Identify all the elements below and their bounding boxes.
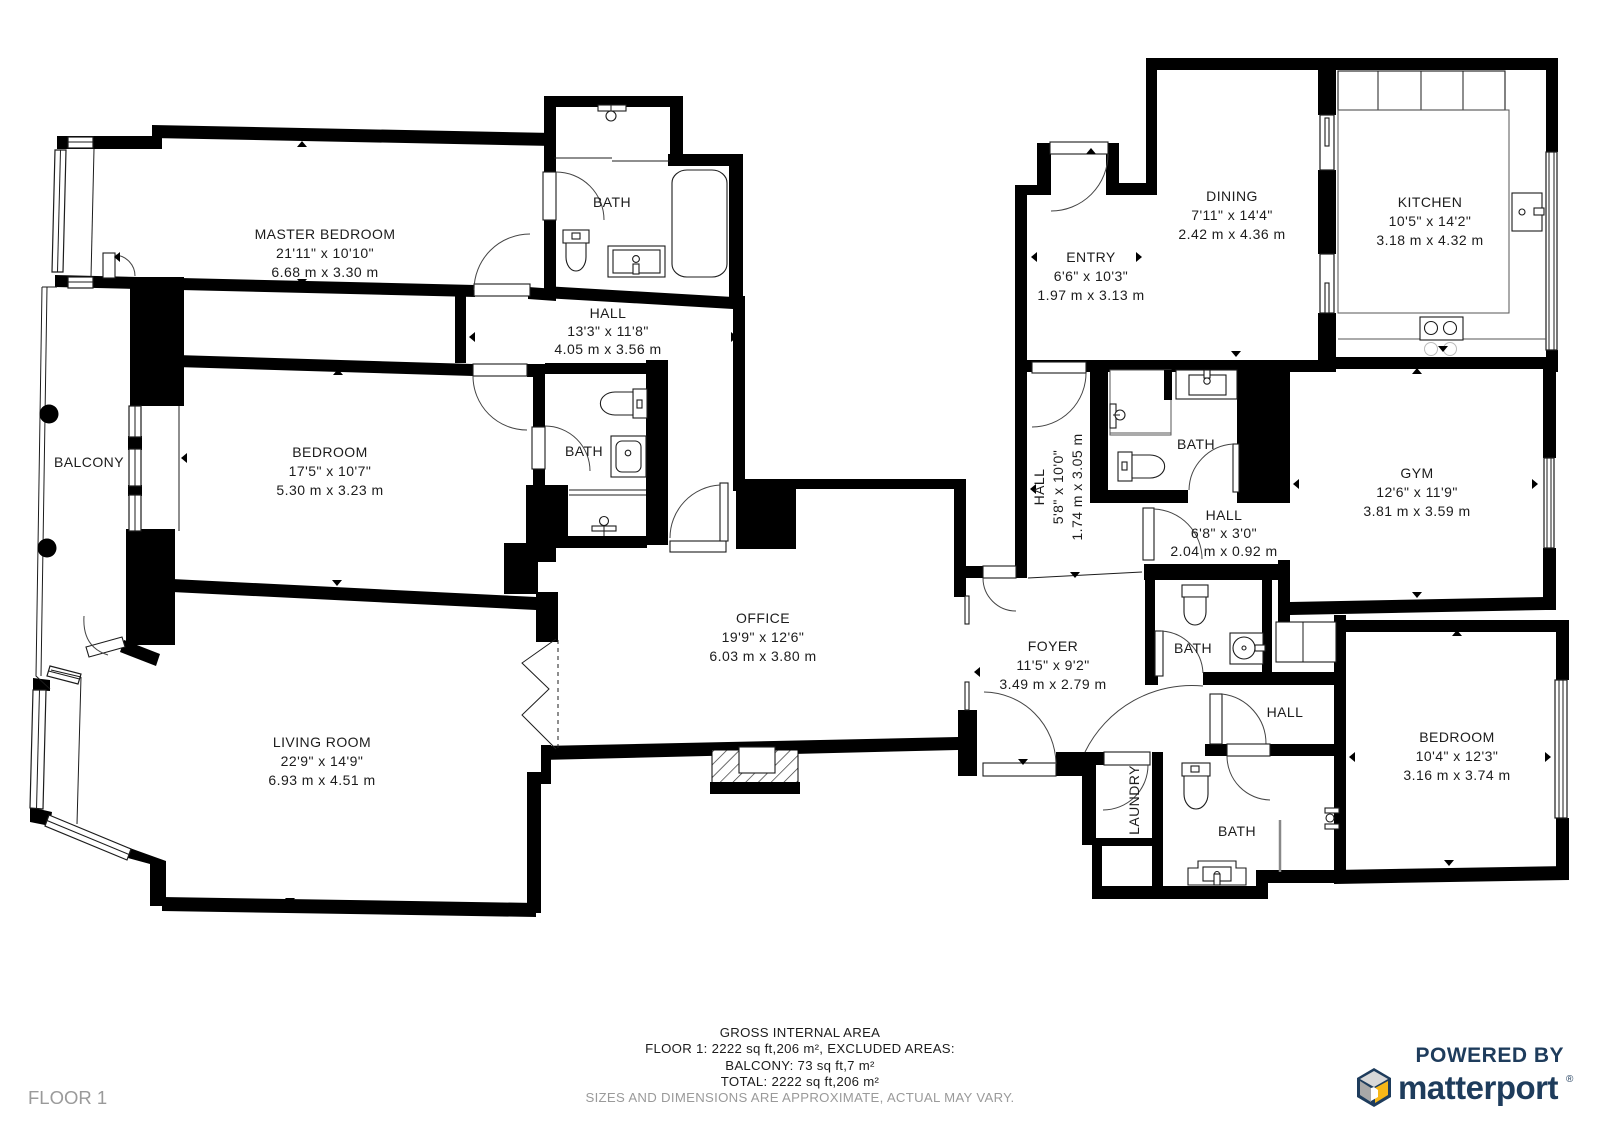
svg-text:KITCHEN: KITCHEN <box>1398 194 1463 210</box>
svg-text:5'8" x 10'0": 5'8" x 10'0" <box>1050 450 1066 524</box>
svg-text:19'9" x 12'6": 19'9" x 12'6" <box>722 629 805 645</box>
svg-text:5.30 m x 3.23 m: 5.30 m x 3.23 m <box>276 482 383 498</box>
svg-text:BALCONY: 73 sq ft,7 m²: BALCONY: 73 sq ft,7 m² <box>725 1058 875 1073</box>
svg-text:ENTRY: ENTRY <box>1066 249 1116 265</box>
svg-text:GROSS INTERNAL AREA: GROSS INTERNAL AREA <box>720 1025 881 1040</box>
svg-text:17'5" x 10'7": 17'5" x 10'7" <box>289 463 372 479</box>
svg-text:6.68 m x 3.30 m: 6.68 m x 3.30 m <box>271 264 378 280</box>
svg-text:FLOOR 1: FLOOR 1 <box>28 1087 107 1108</box>
svg-text:TOTAL: 2222 sq ft,206 m²: TOTAL: 2222 sq ft,206 m² <box>721 1074 880 1089</box>
svg-text:6.03 m x 3.80 m: 6.03 m x 3.80 m <box>709 648 816 664</box>
svg-text:BATH: BATH <box>1218 823 1256 839</box>
svg-text:13'3" x 11'8": 13'3" x 11'8" <box>567 323 649 339</box>
svg-text:1.74 m x 3.05 m: 1.74 m x 3.05 m <box>1069 433 1085 540</box>
svg-text:LAUNDRY: LAUNDRY <box>1126 765 1142 835</box>
svg-text:4.05 m x 3.56 m: 4.05 m x 3.56 m <box>554 341 661 357</box>
svg-text:HALL: HALL <box>590 305 627 321</box>
svg-text:BATH: BATH <box>565 443 603 459</box>
svg-text:LIVING ROOM: LIVING ROOM <box>273 734 371 750</box>
svg-text:3.81 m x 3.59 m: 3.81 m x 3.59 m <box>1363 503 1470 519</box>
svg-text:2.04 m x 0.92 m: 2.04 m x 0.92 m <box>1170 543 1277 559</box>
svg-text:22'9" x 14'9": 22'9" x 14'9" <box>281 753 364 769</box>
svg-text:2.42 m x 4.36 m: 2.42 m x 4.36 m <box>1178 226 1285 242</box>
svg-text:BATH: BATH <box>593 194 631 210</box>
svg-text:BEDROOM: BEDROOM <box>1419 729 1495 745</box>
svg-text:FLOOR 1: 2222 sq ft,206 m², EX: FLOOR 1: 2222 sq ft,206 m², EXCLUDED ARE… <box>645 1041 955 1056</box>
svg-text:6'6" x 10'3": 6'6" x 10'3" <box>1054 268 1128 284</box>
svg-text:3.16 m x 3.74 m: 3.16 m x 3.74 m <box>1403 767 1510 783</box>
svg-text:3.49 m x 2.79 m: 3.49 m x 2.79 m <box>999 676 1106 692</box>
svg-text:POWERED BY: POWERED BY <box>1415 1044 1564 1067</box>
svg-text:BEDROOM: BEDROOM <box>292 444 368 460</box>
svg-text:3.18 m x 4.32 m: 3.18 m x 4.32 m <box>1376 232 1483 248</box>
svg-text:11'5" x 9'2": 11'5" x 9'2" <box>1016 657 1089 673</box>
svg-text:matterport: matterport <box>1398 1069 1559 1106</box>
svg-text:OFFICE: OFFICE <box>736 610 790 626</box>
svg-text:GYM: GYM <box>1400 465 1433 481</box>
svg-text:1.97 m x 3.13 m: 1.97 m x 3.13 m <box>1037 287 1144 303</box>
svg-text:BALCONY: BALCONY <box>54 454 124 470</box>
svg-text:DINING: DINING <box>1206 188 1258 204</box>
svg-text:12'6" x 11'9": 12'6" x 11'9" <box>1376 484 1458 500</box>
svg-text:SIZES AND DIMENSIONS ARE APPRO: SIZES AND DIMENSIONS ARE APPROXIMATE, AC… <box>585 1090 1014 1105</box>
svg-text:FOYER: FOYER <box>1028 638 1078 654</box>
svg-text:21'11" x 10'10": 21'11" x 10'10" <box>276 245 374 261</box>
svg-text:10'4" x 12'3": 10'4" x 12'3" <box>1416 748 1499 764</box>
svg-text:6.93 m x 4.51 m: 6.93 m x 4.51 m <box>268 772 375 788</box>
svg-text:HALL: HALL <box>1206 507 1243 523</box>
svg-text:HALL: HALL <box>1267 704 1304 720</box>
svg-text:6'8" x 3'0": 6'8" x 3'0" <box>1191 525 1257 541</box>
svg-text:7'11" x 14'4": 7'11" x 14'4" <box>1191 207 1273 223</box>
svg-text:HALL: HALL <box>1031 469 1047 506</box>
svg-text:MASTER BEDROOM: MASTER BEDROOM <box>255 226 396 242</box>
svg-text:10'5" x 14'2": 10'5" x 14'2" <box>1389 213 1472 229</box>
svg-text:BATH: BATH <box>1177 436 1215 452</box>
svg-text:®: ® <box>1566 1074 1574 1085</box>
svg-text:BATH: BATH <box>1174 640 1212 656</box>
